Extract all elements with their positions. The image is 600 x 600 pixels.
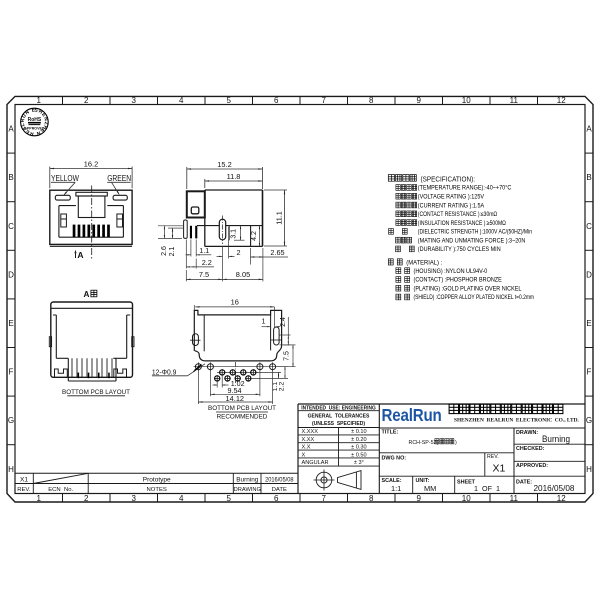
svg-text:B: B <box>586 173 591 182</box>
svg-text:11.8: 11.8 <box>227 172 241 181</box>
svg-text:(MATERIAL) :: (MATERIAL) : <box>406 259 442 266</box>
svg-text:UNIT:: UNIT: <box>416 478 430 484</box>
svg-text:11.1: 11.1 <box>274 211 283 224</box>
svg-text:X: X <box>302 452 306 458</box>
svg-text:H: H <box>586 465 592 474</box>
svg-text:BOTTOM PCB LAYOUT: BOTTOM PCB LAYOUT <box>208 405 276 412</box>
svg-text:1: 1 <box>37 96 42 105</box>
svg-text:1:1: 1:1 <box>391 484 401 493</box>
svg-text:X.XX: X.XX <box>302 437 315 443</box>
svg-text:RECOMMENDED: RECOMMENDED <box>217 414 268 421</box>
svg-text:Burning: Burning <box>542 433 570 444</box>
svg-text:TITLE:: TITLE: <box>382 430 399 436</box>
svg-text:(TEMPERATURE RANGE):-40~+70°C: (TEMPERATURE RANGE):-40~+70°C <box>418 185 512 191</box>
svg-text:(INSULATION RESISTANCE ):≥500M: (INSULATION RESISTANCE ):≥500MΩ <box>418 220 506 227</box>
svg-text:2: 2 <box>84 96 89 105</box>
svg-text:6: 6 <box>274 96 279 105</box>
svg-text:4.2: 4.2 <box>251 231 258 241</box>
svg-text:SHEET: SHEET <box>457 480 476 486</box>
svg-text:REV.: REV. <box>487 454 499 460</box>
svg-text:E: E <box>586 319 591 328</box>
svg-text:11: 11 <box>510 96 519 105</box>
svg-text:ANGULAR: ANGULAR <box>302 460 329 466</box>
svg-text:NOTES: NOTES <box>147 487 167 493</box>
svg-text:A: A <box>84 290 90 299</box>
svg-text:): ) <box>455 440 457 446</box>
svg-text:4: 4 <box>179 494 184 503</box>
svg-text:5: 5 <box>227 96 232 105</box>
svg-text:2.6: 2.6 <box>161 246 168 256</box>
svg-text:DATE: DATE <box>272 487 287 493</box>
svg-text:GENERAL TOLERANCES: GENERAL TOLERANCES <box>308 413 370 419</box>
svg-text:6: 6 <box>274 494 279 503</box>
svg-text:12: 12 <box>557 96 566 105</box>
svg-text:± 0.30: ± 0.30 <box>351 445 367 451</box>
svg-text:DRAWN:: DRAWN: <box>516 430 538 436</box>
svg-text:(CURRENT RATING ):1.5A: (CURRENT RATING ):1.5A <box>418 203 484 209</box>
svg-text:2016/05/08: 2016/05/08 <box>265 477 294 483</box>
svg-text:B: B <box>8 173 13 182</box>
svg-text:9: 9 <box>417 96 422 105</box>
svg-text:C: C <box>586 222 592 231</box>
svg-text:1: 1 <box>262 316 266 325</box>
svg-text:X1: X1 <box>20 477 28 484</box>
svg-text:7: 7 <box>322 96 327 105</box>
svg-text:X.X: X.X <box>302 445 311 451</box>
svg-text:(CONTACT) :PHOSPHOR BRONZE: (CONTACT) :PHOSPHOR BRONZE <box>414 277 502 283</box>
svg-text:3: 3 <box>132 494 137 503</box>
svg-text:9: 9 <box>417 494 422 503</box>
svg-text:BOTTOM PCB LAYOUT: BOTTOM PCB LAYOUT <box>62 389 130 396</box>
svg-text:G: G <box>586 416 592 425</box>
svg-text:(DIELECTRIC STRENGTH ):1000V A: (DIELECTRIC STRENGTH ):1000V AC/(50HZ)/M… <box>418 229 532 236</box>
svg-text:Burning: Burning <box>236 477 258 484</box>
svg-text:7.5: 7.5 <box>199 270 209 279</box>
svg-text:1 OF 1: 1 OF 1 <box>474 484 500 493</box>
svg-text:± 0.10: ± 0.10 <box>351 429 367 435</box>
svg-text:D: D <box>586 270 592 279</box>
svg-text:APPROVED: APPROVED <box>24 127 45 131</box>
svg-text:(SHIELD) :COPPER ALLOY PLATED: (SHIELD) :COPPER ALLOY PLATED NICKEL t=0… <box>414 295 535 302</box>
svg-text:2.2: 2.2 <box>202 258 212 267</box>
svg-text:± 0.50: ± 0.50 <box>351 452 367 458</box>
svg-text:10: 10 <box>462 494 471 503</box>
svg-text:DATE:: DATE: <box>516 480 532 486</box>
svg-text:RealRun: RealRun <box>382 405 442 426</box>
svg-text:Prototype: Prototype <box>143 477 171 484</box>
svg-text:2.4: 2.4 <box>280 317 287 327</box>
svg-text:H: H <box>8 465 14 474</box>
svg-text:(SPECIFICATION):: (SPECIFICATION): <box>421 176 476 183</box>
svg-text:APPROVED:: APPROVED: <box>516 463 548 469</box>
svg-text:(MATING AND UNMATING FORCE ):3: (MATING AND UNMATING FORCE ):3~20N <box>418 238 526 244</box>
svg-text:7.5: 7.5 <box>284 351 291 361</box>
svg-text:2: 2 <box>84 494 89 503</box>
svg-text:A: A <box>77 250 83 260</box>
svg-text:2.2: 2.2 <box>278 382 285 392</box>
svg-text:± 0.20: ± 0.20 <box>351 437 367 443</box>
svg-text:3.1: 3.1 <box>230 229 237 239</box>
svg-text:16.2: 16.2 <box>84 159 98 168</box>
svg-text:(UNLESS SPECIFIED): (UNLESS SPECIFIED) <box>312 421 365 427</box>
svg-text:D: D <box>8 270 14 279</box>
svg-text:10: 10 <box>462 96 471 105</box>
svg-text:SHENZHEN REALRUN ELECTRONIC: SHENZHEN REALRUN ELECTRONIC CO., LTD. <box>454 417 579 423</box>
svg-text:2: 2 <box>236 248 240 257</box>
svg-text:(DURABILITY ):750 CYCLES MIN: (DURABILITY ):750 CYCLES MIN <box>418 247 501 253</box>
svg-text:12: 12 <box>557 494 566 503</box>
svg-text:15.2: 15.2 <box>217 160 231 169</box>
svg-text:C: C <box>8 222 14 231</box>
svg-text:(VOLTAGE RATING ):125V: (VOLTAGE RATING ):125V <box>418 194 484 200</box>
svg-text:ECN No.: ECN No. <box>48 487 73 493</box>
svg-text:1.1: 1.1 <box>199 248 209 255</box>
svg-text:E: E <box>8 319 13 328</box>
svg-text:G: G <box>8 416 14 425</box>
svg-text:2.65: 2.65 <box>270 248 284 257</box>
svg-text:2016/05/08: 2016/05/08 <box>534 484 575 493</box>
svg-text:5: 5 <box>227 494 232 503</box>
svg-text:8.05: 8.05 <box>236 270 250 279</box>
svg-text:F: F <box>9 368 14 377</box>
svg-text:REV.: REV. <box>17 487 31 493</box>
svg-text:INTENDED USE: ENGINEERING: INTENDED USE: ENGINEERING <box>301 405 376 411</box>
svg-text:8: 8 <box>369 494 374 503</box>
svg-text:A: A <box>586 125 592 134</box>
svg-text:2.1: 2.1 <box>169 247 176 257</box>
svg-text:16: 16 <box>231 298 239 307</box>
svg-text:A: A <box>8 125 14 134</box>
svg-text:± 3°: ± 3° <box>354 460 364 466</box>
svg-text:DRAWING: DRAWING <box>234 487 261 493</box>
svg-text:RCH-SP-52(: RCH-SP-52( <box>409 440 439 446</box>
svg-text:X.XXX: X.XXX <box>302 429 319 435</box>
svg-text:8: 8 <box>369 96 374 105</box>
svg-text:3: 3 <box>132 96 137 105</box>
svg-text:1: 1 <box>37 494 42 503</box>
svg-text:(HOUSING) :NYLON UL94V-0: (HOUSING) :NYLON UL94V-0 <box>414 269 489 275</box>
svg-text:MM: MM <box>424 484 436 493</box>
svg-text:DWG NO:: DWG NO: <box>382 456 407 462</box>
svg-text:11: 11 <box>510 494 519 503</box>
svg-text:CHECKED:: CHECKED: <box>516 446 545 452</box>
svg-text:F: F <box>587 368 592 377</box>
svg-text:14.12: 14.12 <box>226 394 245 403</box>
svg-text:(CONTACT RESISTANCE ):≤30mΩ: (CONTACT RESISTANCE ):≤30mΩ <box>418 212 497 219</box>
svg-text:X1: X1 <box>493 463 506 475</box>
svg-text:(PLATING) :GOLD PLATING OVER N: (PLATING) :GOLD PLATING OVER NICKEL <box>414 286 523 292</box>
svg-text:SCALE:: SCALE: <box>382 478 402 484</box>
svg-text:4: 4 <box>179 96 184 105</box>
svg-text:7: 7 <box>322 494 327 503</box>
